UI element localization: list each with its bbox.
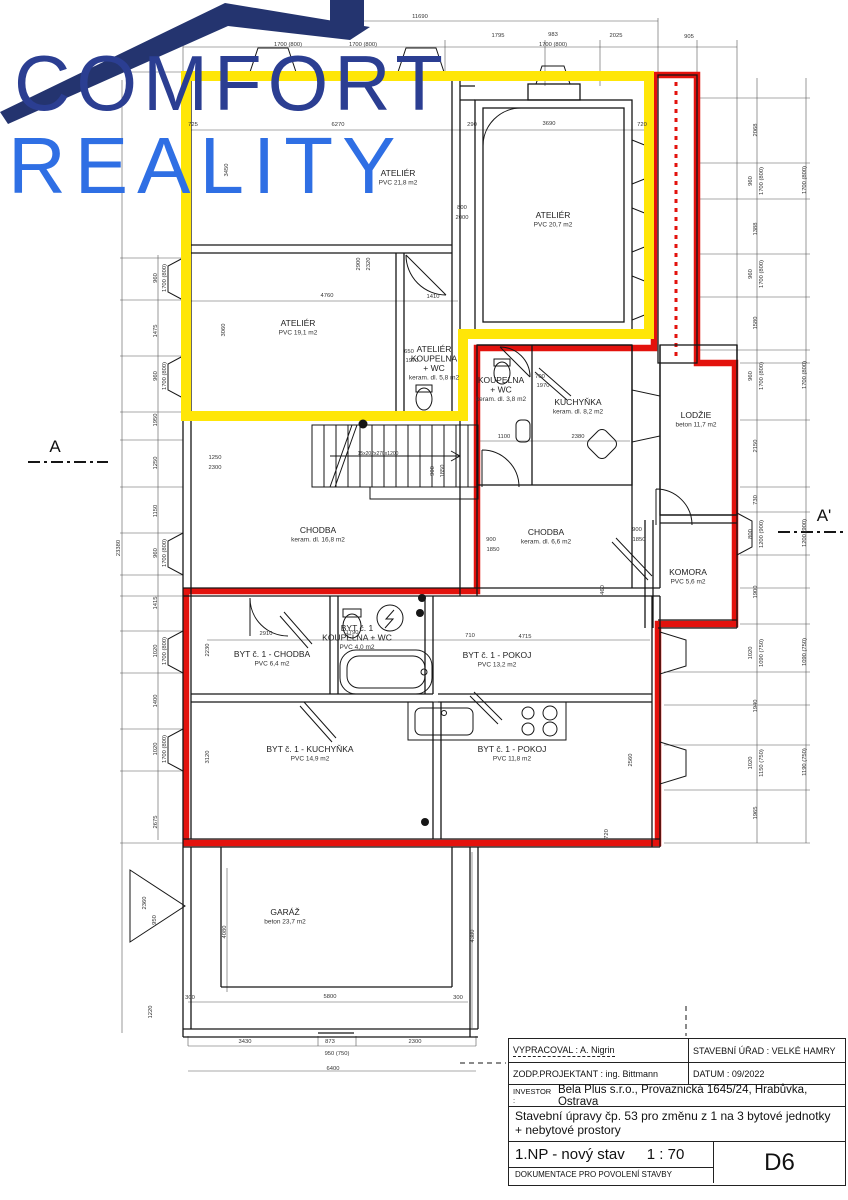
logo-text-comfort: COMFORT (14, 44, 449, 122)
dim-label: 2300 (209, 465, 222, 471)
dim-label: 4080 (222, 926, 228, 939)
section-lines (28, 462, 846, 1063)
room-label-byt1-chodba: BYT č. 1 - CHODBAPVC 6,4 m2 (234, 649, 311, 668)
title-block-stavebni-urad: STAVEBNÍ ÚŘAD : VELKÉ HAMRY (689, 1039, 845, 1062)
floor-plan-page: A A' 15x202x270x1200 ATELIÉRPVC 21,8 m2A… (0, 0, 848, 1200)
title-block-projektant: ZODP.PROJEKTANT : ing. Bittmann (509, 1063, 689, 1084)
dim-label: 900 (486, 537, 496, 543)
dim-label: 720 (604, 829, 610, 839)
doc-type: DOKUMENTACE PRO POVOLENÍ STAVBY (509, 1167, 713, 1180)
dim-label: 3690 (543, 121, 556, 127)
dim-label: 900 (632, 527, 642, 533)
dim-label: 710 (465, 633, 475, 639)
dim-label: 1400 (153, 695, 159, 708)
dim-label: 1020 (748, 647, 754, 660)
boiler-icon (377, 605, 403, 631)
dim-label: 1970 (537, 383, 550, 389)
dim-label: 1220 (148, 1006, 154, 1019)
room-label-lodzie: LODŽIEbeton 11,7 m2 (675, 410, 716, 429)
burner-icon (522, 723, 534, 735)
room-label-komora: KOMORAPVC 5,6 m2 (669, 567, 707, 586)
dim-label: 1150 (750) (759, 749, 765, 777)
dim-label: 1150 (153, 505, 159, 517)
diagonal-sink-icon (585, 427, 619, 461)
room-label-byt1-kuchynka: BYT č. 1 - KUCHYŇKAPVC 14,9 m2 (266, 744, 354, 763)
gate-symbol (130, 870, 185, 942)
dim-label: 1410 (427, 294, 440, 300)
dim-label: 2910 (260, 631, 273, 637)
dim-label: 1900 (753, 586, 759, 599)
staircase (312, 425, 478, 499)
burner-icon (543, 722, 557, 736)
room-label-garaz: GARÁŽbeton 23,7 m2 (264, 907, 306, 926)
dim-label: 950 (750) (325, 1051, 350, 1057)
section-marker-a: A (49, 437, 61, 456)
dim-label: 950 (152, 915, 158, 925)
room-label-kuchynka: KUCHYŇKAkeram. dl. 8,2 m2 (553, 397, 604, 416)
dim-label: 1795 (492, 33, 505, 39)
dim-label: 2360 (142, 897, 148, 910)
dim-label: 1700 (800) (539, 42, 567, 48)
dim-label: 983 (548, 32, 558, 38)
logo-text-reality: REALITY (8, 126, 404, 206)
dim-label: 2068 (753, 124, 759, 137)
dim-label: 1020 (153, 645, 159, 658)
investor-label: INVESTOR : (513, 1087, 554, 1105)
room-label-chodba-mala: CHODBAkeram. dl. 6,6 m2 (521, 527, 572, 546)
dim-label: 1950 (153, 414, 159, 427)
title-block-datum: DATUM : 09/2022 (689, 1063, 845, 1084)
dim-label: 2900 (356, 258, 362, 271)
dim-label: 900 (430, 466, 436, 476)
dim-label: 1700 (800) (759, 362, 765, 390)
dim-label: 2320 (366, 258, 372, 271)
room-label-byt1-pokoj-13: BYT č. 1 - POKOJPVC 13,2 m2 (463, 650, 532, 669)
dim-label: 4380 (470, 930, 476, 943)
dim-label: 1700 (800) (759, 260, 765, 288)
dim-label: 960 (748, 176, 754, 186)
dim-label: 1700 (800) (802, 166, 808, 194)
dim-label: 700 (535, 374, 545, 380)
dim-label: 300 (453, 995, 463, 1001)
dim-label: 730 (753, 495, 759, 505)
dim-label: 873 (325, 1039, 335, 1045)
dim-label: 1700 (800) (162, 735, 168, 763)
dim-label: 1850 (633, 537, 646, 543)
dim-label: 1100 (498, 434, 510, 440)
dim-label: 1790 (346, 630, 359, 636)
room-label-atelier-19: ATELIÉRPVC 19,1 m2 (279, 318, 318, 337)
dim-label: 1700 (800) (162, 362, 168, 390)
dim-label: 1850 (440, 465, 446, 478)
drawing-scale: 1 : 70 (647, 1146, 685, 1163)
dim-label: 800 (457, 205, 467, 211)
dim-label: 300 (185, 995, 195, 1001)
kitchen-counter (408, 702, 566, 740)
title-block-drawing: 1.NP - nový stav 1 : 70 DOKUMENTACE PRO … (509, 1142, 713, 1183)
dim-label: 960 (153, 548, 159, 558)
dim-label: 2000 (456, 215, 469, 221)
dim-label: 1700 (800) (162, 539, 168, 567)
dim-label: 1970 (406, 358, 419, 364)
dim-label: 2560 (628, 754, 634, 767)
section-marker-a-prime: A' (817, 506, 832, 525)
dim-label: 2150 (753, 440, 759, 453)
dim-label: 2230 (205, 644, 211, 657)
dim-label: 460 (600, 585, 606, 595)
dim-label: 1388 (753, 223, 759, 236)
dim-label: 905 (684, 34, 694, 40)
kitchen-sink-icon (415, 708, 473, 735)
dim-label: 11690 (412, 14, 428, 20)
dim-label: 1190 (750) (802, 748, 808, 776)
burner-icon (522, 707, 534, 719)
dim-label: 2025 (610, 33, 623, 39)
dim-label: 1940 (753, 700, 759, 713)
investor-value: Bela Plus s.r.o., Provaznická 1645/24, H… (558, 1084, 841, 1108)
dim-label: 800 (748, 529, 754, 539)
dim-label: 1415 (153, 597, 159, 610)
dim-label: 3120 (205, 751, 211, 764)
title-block-description: Stavební úpravy čp. 53 pro změnu z 1 na … (509, 1107, 845, 1142)
door-diagonals (280, 368, 652, 742)
dim-label: 6400 (327, 1066, 340, 1072)
dim-label: 1700 (800) (162, 264, 168, 292)
title-block-vypracoval: VYPRACOVAL : A. Nigrin (509, 1039, 689, 1062)
dim-label: 23380 (116, 540, 122, 556)
dim-label: 1580 (753, 317, 759, 330)
dim-label: 960 (748, 371, 754, 381)
dim-label: 720 (637, 122, 647, 128)
dim-label: 1090 (750) (759, 639, 765, 667)
burner-icon (543, 706, 557, 720)
bathtub-icon (340, 650, 432, 694)
dim-label: 5800 (324, 994, 337, 1000)
dim-label: 4715 (519, 634, 532, 640)
drawing-name: 1.NP - nový stav (515, 1146, 625, 1163)
dim-label: 650 (404, 349, 414, 355)
sink-icon (516, 420, 530, 442)
title-block-investor: INVESTOR : Bela Plus s.r.o., Provaznická… (509, 1085, 845, 1106)
shower-icon (406, 255, 446, 295)
dim-label: 960 (748, 269, 754, 279)
dim-label: 1700 (800) (802, 361, 808, 389)
dim-label: 1700 (800) (162, 637, 168, 665)
title-block: VYPRACOVAL : A. Nigrin STAVEBNÍ ÚŘAD : V… (508, 1038, 846, 1186)
dim-label: 2300 (409, 1039, 422, 1045)
dim-label: 1475 (153, 325, 159, 338)
dim-label: 1020 (748, 757, 754, 770)
vypracoval-value: VYPRACOVAL : A. Nigrin (513, 1045, 615, 1057)
dim-label: 3060 (221, 324, 227, 337)
dim-label: 1850 (487, 547, 500, 553)
stair-spec-label: 15x202x270x1200 (358, 451, 399, 457)
description-line-1: Stavební úpravy čp. 53 pro změnu z 1 na … (515, 1109, 839, 1123)
dim-label: 3430 (239, 1039, 252, 1045)
description-line-2: + nebytové prostory (515, 1123, 839, 1137)
dim-label: 4760 (321, 293, 334, 299)
drawing-number: D6 (713, 1142, 845, 1183)
dim-label: 1200 (900) (759, 520, 765, 548)
dim-label: 1250 (153, 457, 159, 470)
dim-label: 1250 (209, 455, 222, 461)
fixtures (130, 108, 692, 942)
dim-label: 1965 (753, 807, 759, 820)
room-label-chodba-hlavni: CHODBAkeram. dl. 16,8 m2 (291, 525, 345, 544)
dim-label: 290 (467, 122, 477, 128)
dim-label: 2380 (572, 434, 585, 440)
dim-label: 960 (153, 371, 159, 381)
dim-label: 1090 (750) (802, 638, 808, 666)
room-label-atelier-20: ATELIÉRPVC 20,7 m2 (534, 210, 573, 229)
room-label-byt1-pokoj-11: BYT č. 1 - POKOJPVC 11,8 m2 (478, 744, 547, 763)
dim-label: 1700 (800) (759, 167, 765, 195)
toilet-icon (416, 385, 432, 410)
room-label-koupelna-wc: KOUPELNA+ WCkeram. dl. 3,8 m2 (476, 375, 527, 403)
dim-label: 960 (153, 273, 159, 283)
dim-label: 2675 (153, 816, 159, 829)
dim-label: 1200 (900) (802, 519, 808, 547)
dim-label: 1020 (153, 743, 159, 756)
